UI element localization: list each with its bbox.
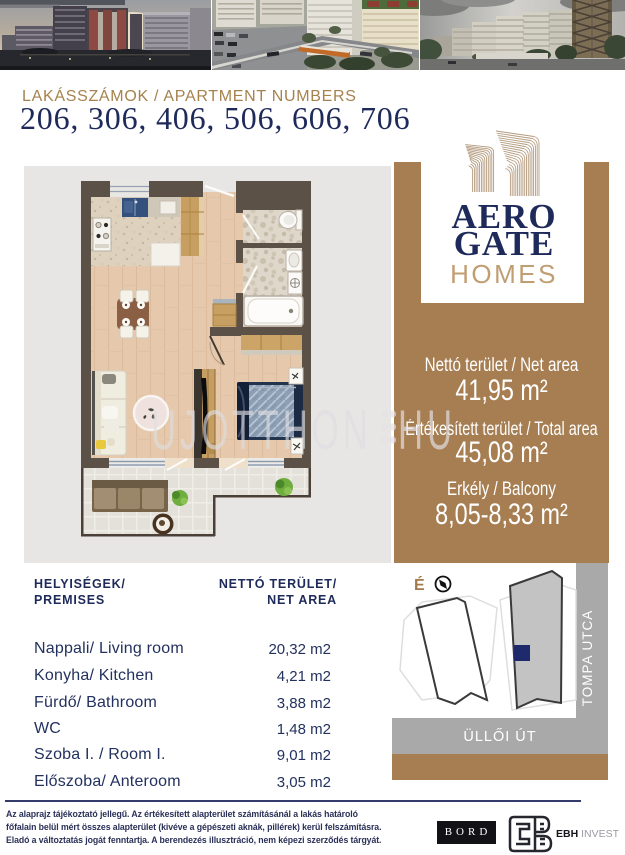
svg-text:É: É [414,575,425,594]
svg-text:GATE: GATE [454,224,555,263]
svg-text:HOMES: HOMES [450,259,558,289]
svg-text:TOMPA UTCA: TOMPA UTCA [580,610,595,707]
svg-text:ÜLLŐI ÚT: ÜLLŐI ÚT [463,727,536,745]
